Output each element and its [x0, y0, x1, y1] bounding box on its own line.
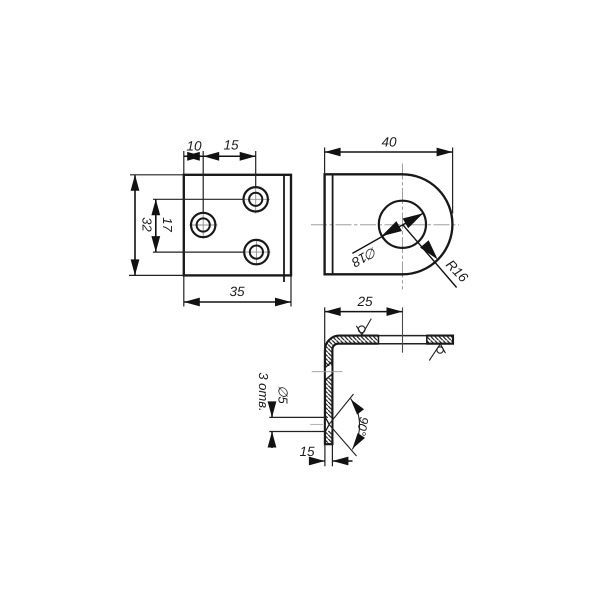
svg-text:35: 35: [229, 284, 245, 299]
svg-text:R16: R16: [443, 257, 471, 286]
svg-text:15: 15: [223, 137, 239, 152]
svg-text:25: 25: [356, 294, 373, 309]
svg-text:17: 17: [160, 217, 175, 232]
svg-text:90°: 90°: [354, 416, 371, 437]
svg-text:32: 32: [140, 217, 155, 232]
svg-text:∅18: ∅18: [349, 244, 380, 270]
svg-text:10: 10: [186, 138, 202, 153]
svg-text:15: 15: [299, 444, 315, 459]
svg-text:3 отв.: 3 отв.: [256, 372, 271, 411]
svg-text:∅5: ∅5: [276, 385, 291, 404]
svg-text:40: 40: [381, 134, 397, 149]
